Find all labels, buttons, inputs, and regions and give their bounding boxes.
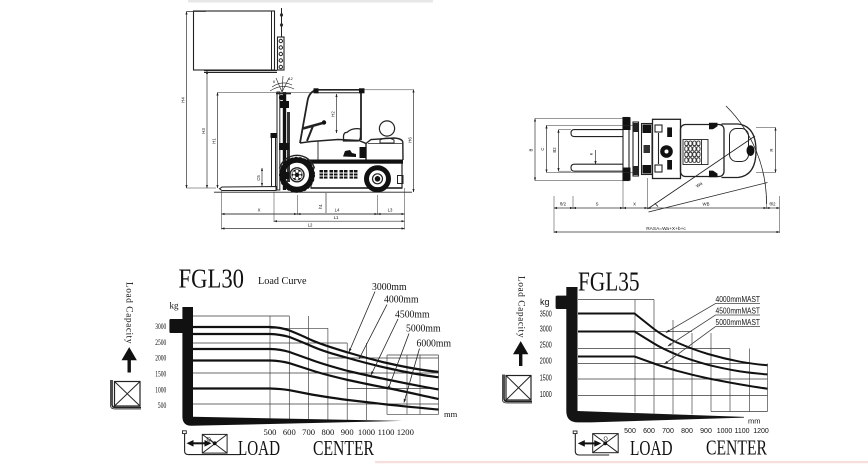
svg-text:Load Capacity: Load Capacity: [516, 276, 526, 338]
svg-text:5000mm: 5000mm: [406, 323, 441, 335]
svg-text:1000: 1000: [155, 386, 166, 395]
svg-text:X: X: [633, 202, 636, 207]
svg-text:2500: 2500: [155, 338, 166, 347]
svg-text:CENTER: CENTER: [706, 436, 767, 460]
svg-text:5000mmMAST: 5000mmMAST: [716, 317, 761, 327]
svg-text:700: 700: [662, 428, 674, 435]
svg-text:Q: Q: [604, 437, 609, 443]
svg-text:3000: 3000: [540, 325, 552, 334]
svg-text:Load Curve: Load Curve: [258, 276, 307, 287]
svg-text:1000: 1000: [717, 428, 733, 435]
svg-text:600: 600: [283, 427, 296, 437]
svg-text:θ/2: θ/2: [770, 202, 777, 207]
svg-text:kg: kg: [170, 301, 180, 311]
svg-text:4000mm: 4000mm: [384, 294, 419, 306]
svg-text:LOAD: LOAD: [238, 436, 280, 460]
svg-text:2000: 2000: [155, 354, 166, 363]
svg-text:L3: L3: [388, 208, 393, 213]
svg-text:1500: 1500: [540, 374, 552, 383]
svg-text:800: 800: [681, 428, 693, 435]
svg-text:Load Capacity: Load Capacity: [124, 282, 134, 344]
svg-text:1100: 1100: [378, 427, 395, 437]
svg-text:6000mm: 6000mm: [417, 338, 452, 350]
svg-text:FGL30: FGL30: [179, 264, 245, 294]
svg-text:H3: H3: [201, 128, 206, 134]
svg-text:4000mmMAST: 4000mmMAST: [716, 294, 761, 304]
svg-text:4500mmMAST: 4500mmMAST: [716, 306, 761, 316]
svg-text:B: B: [529, 148, 534, 151]
svg-text:12: 12: [289, 77, 293, 81]
svg-text:H6: H6: [408, 137, 413, 143]
svg-text:H1: H1: [212, 138, 217, 144]
svg-text:CENTER: CENTER: [313, 436, 374, 460]
svg-text:2000: 2000: [540, 357, 552, 366]
svg-text:3000mm: 3000mm: [372, 281, 407, 293]
svg-text:θ/2: θ/2: [560, 202, 567, 207]
svg-text:1200: 1200: [397, 427, 414, 437]
svg-text:L2: L2: [308, 223, 313, 228]
svg-text:R: R: [769, 148, 774, 151]
svg-text:C5: C5: [256, 175, 261, 181]
svg-text:WB: WB: [703, 202, 710, 207]
svg-text:L1: L1: [334, 215, 339, 220]
svg-text:X: X: [258, 208, 261, 213]
svg-text:H4: H4: [181, 97, 186, 103]
svg-text:H2: H2: [331, 111, 336, 117]
svg-text:6: 6: [273, 80, 275, 84]
svg-text:h1: h1: [318, 204, 323, 209]
svg-text:4500mm: 4500mm: [395, 309, 430, 321]
svg-text:3000: 3000: [155, 322, 166, 331]
svg-text:1500: 1500: [155, 370, 166, 379]
svg-text:L4: L4: [335, 208, 340, 213]
svg-text:FGL35: FGL35: [578, 267, 640, 297]
svg-text:1100: 1100: [734, 428, 749, 435]
svg-text:S: S: [596, 202, 599, 207]
svg-text:mm: mm: [748, 417, 761, 426]
svg-text:600: 600: [643, 428, 655, 435]
svg-text:3500: 3500: [540, 310, 552, 319]
svg-text:1000: 1000: [540, 390, 552, 399]
svg-text:900: 900: [700, 428, 712, 435]
svg-text:Wa: Wa: [695, 181, 704, 189]
svg-text:e: e: [589, 152, 594, 155]
svg-text:LOAD: LOAD: [630, 436, 673, 460]
svg-text:2500: 2500: [540, 341, 552, 350]
svg-text:1200: 1200: [753, 428, 769, 435]
svg-text:mm: mm: [444, 409, 458, 419]
svg-text:500: 500: [158, 401, 167, 410]
svg-text:Q: Q: [207, 437, 212, 443]
svg-text:500: 500: [624, 428, 636, 435]
svg-text:C: C: [540, 147, 545, 150]
svg-text:RASA=Wa+X+b+c: RASA=Wa+X+b+c: [646, 226, 686, 232]
svg-text:kg: kg: [540, 297, 550, 307]
svg-text:B2: B2: [552, 147, 557, 153]
